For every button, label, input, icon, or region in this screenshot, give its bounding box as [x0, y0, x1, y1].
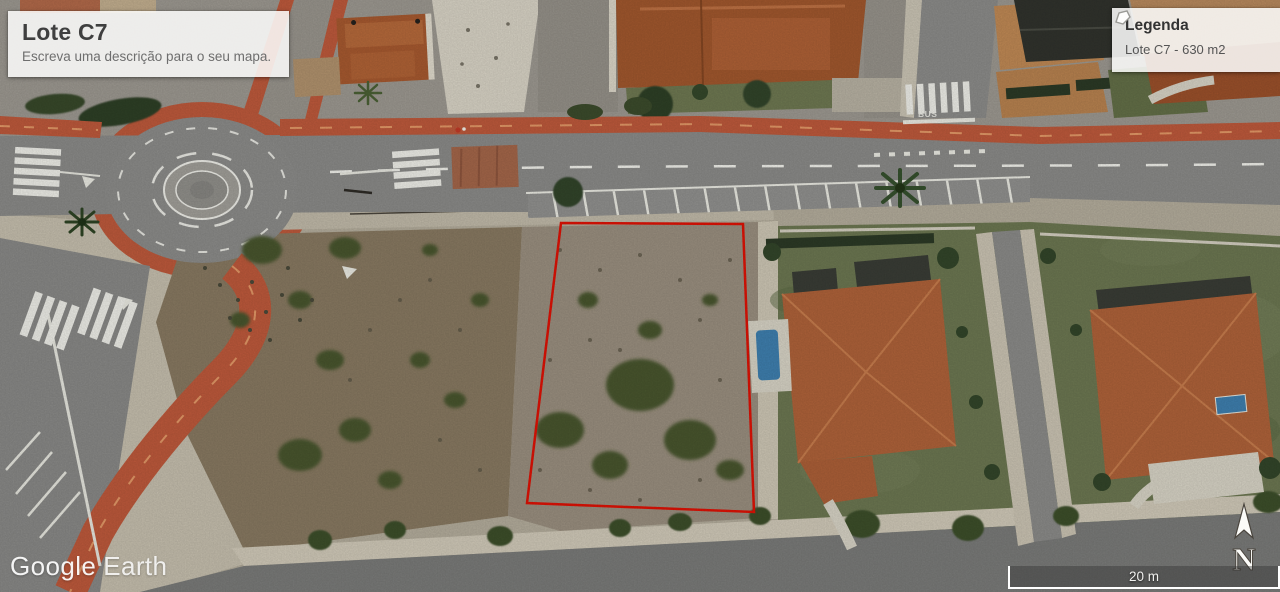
- legend-panel: Legenda Lote C7 - 630 m2: [1112, 8, 1280, 72]
- scale-bar: 20 m: [1008, 566, 1280, 589]
- north-arrow-icon: [1235, 504, 1253, 538]
- polygon-icon: [1112, 8, 1132, 28]
- scale-label: 20 m: [1129, 569, 1159, 584]
- map-canvas[interactable]: BUS: [0, 0, 1280, 592]
- watermark-earth: Earth: [103, 551, 167, 581]
- watermark-google: Google: [10, 551, 96, 581]
- google-earth-watermark: GoogleEarth: [10, 551, 167, 582]
- legend-title: Legenda: [1125, 17, 1280, 35]
- legend-item: Lote C7 - 630 m2: [1125, 42, 1280, 57]
- legend-item-label: Lote C7 - 630 m2: [1125, 42, 1225, 57]
- satellite-grain: [0, 0, 1280, 592]
- google-earth-viewport: BUS: [0, 0, 1280, 592]
- page-title: Lote C7: [22, 20, 275, 44]
- title-panel[interactable]: Lote C7 Escreva uma descrição para o seu…: [8, 11, 289, 77]
- map-description-placeholder[interactable]: Escreva uma descrição para o seu mapa.: [22, 49, 275, 64]
